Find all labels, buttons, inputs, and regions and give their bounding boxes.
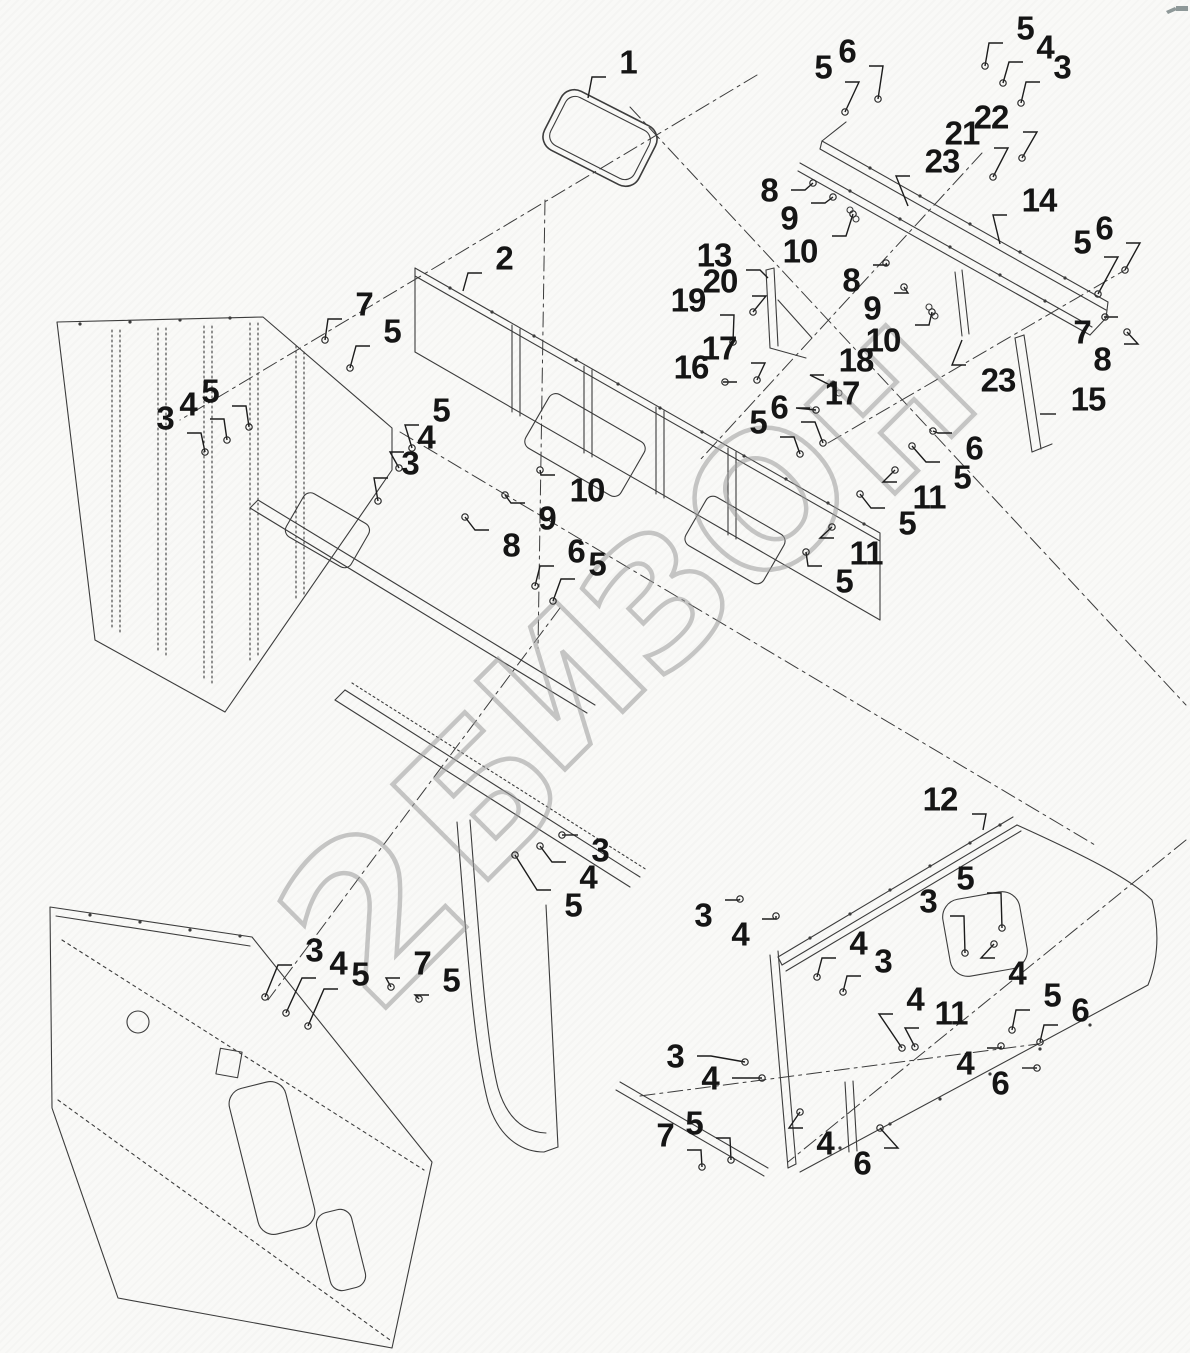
callout-label-3: 3 [401,447,418,480]
callout-label-2: 2 [495,242,512,275]
callout-leader [465,517,489,530]
callout-label-6: 6 [991,1067,1008,1100]
callout-label-5: 5 [351,958,368,991]
callout-label-3: 3 [694,899,711,932]
callout-label-4: 4 [417,421,434,454]
callout-leader [1022,132,1037,158]
callout-label-8: 8 [1093,343,1110,376]
callout-leader-lines [0,0,1190,1353]
callout-label-23: 23 [981,364,1016,397]
callout-label-4: 4 [1008,957,1025,990]
callout-leader [588,77,606,98]
callout-leader [1098,257,1118,294]
callout-leader [950,916,965,953]
callout-label-4: 4 [701,1062,718,1095]
callout-label-19: 19 [671,284,706,317]
callout-label-5: 5 [1073,226,1090,259]
callout-leader [1021,82,1040,103]
callout-leader [832,214,853,236]
callout-leader [981,944,995,958]
callout-leader [896,176,910,206]
callout-label-15: 15 [1071,383,1106,416]
callout-leader [801,422,823,443]
callout-leader [873,263,887,265]
callout-label-3: 3 [156,402,173,435]
callout-label-3: 3 [305,934,322,967]
callout-label-3: 3 [1053,51,1070,84]
callout-label-4: 4 [849,927,866,960]
callout-leader [820,527,834,538]
callout-label-3: 3 [666,1040,683,1073]
callout-leader [187,433,205,452]
callout-label-4: 4 [579,861,596,894]
callout-leader [232,406,249,427]
callout-label-9: 9 [780,202,797,235]
callout-label-17: 17 [825,377,860,410]
callout-leader [879,1014,902,1048]
callout-label-9: 9 [538,502,555,535]
callout-leader [374,478,388,501]
callout-leader [817,958,836,977]
callout-leader [725,899,740,900]
callout-leader [883,470,897,482]
callout-label-6: 6 [853,1147,870,1180]
callout-label-7: 7 [355,288,372,321]
callout-label-4: 4 [329,947,346,980]
callout-label-8: 8 [760,174,777,207]
callout-label-3: 3 [874,945,891,978]
callout-label-23: 23 [925,145,960,178]
callout-label-5: 5 [442,964,459,997]
callout-label-8: 8 [842,264,859,297]
callout-leader [1012,1010,1030,1030]
callout-leader [540,846,566,862]
callout-label-4: 4 [956,1047,973,1080]
callout-label-18: 18 [839,344,874,377]
callout-label-7: 7 [656,1119,673,1152]
callout-label-5: 5 [432,394,449,427]
callout-label-20: 20 [703,265,738,298]
callout-label-5: 5 [383,315,400,348]
callout-leader [553,579,575,601]
callout-label-5: 5 [685,1107,702,1140]
callout-label-6: 6 [1095,212,1112,245]
callout-label-10: 10 [570,474,605,507]
callout-leader [463,273,482,291]
callout-label-6: 6 [567,535,584,568]
callout-label-14: 14 [1022,184,1057,217]
callout-label-5: 5 [1016,12,1033,45]
callout-label-5: 5 [956,862,973,895]
callout-label-4: 4 [816,1127,833,1160]
callout-label-5: 5 [588,548,605,581]
callout-leader [845,82,859,112]
callout-leader [987,893,1002,928]
callout-label-5: 5 [201,375,218,408]
callout-leader [746,270,768,278]
callout-label-5: 5 [564,889,581,922]
callout-label-17: 17 [702,332,737,365]
callout-leader [993,215,1007,244]
callout-label-4: 4 [179,388,196,421]
callout-leader [1125,243,1140,270]
callout-label-5: 5 [814,51,831,84]
callout-leader [912,446,940,462]
callout-label-11: 11 [850,537,883,570]
callout-leader [308,989,338,1026]
callout-label-10: 10 [783,235,818,268]
callout-label-5: 5 [749,406,766,439]
callout-leader [515,855,551,890]
callout-leader [716,1138,731,1160]
callout-label-9: 9 [863,292,880,325]
callout-label-4: 4 [731,918,748,951]
callout-label-5: 5 [953,461,970,494]
callout-leader [286,978,316,1013]
callout-leader [880,1128,898,1148]
callout-leader [325,319,342,340]
callout-leader [350,346,370,368]
callout-label-5: 5 [1043,979,1060,1012]
parts-diagram-page: 2БИЗОН 156543222123891014132019289106578… [0,0,1190,1353]
callout-label-6: 6 [770,391,787,424]
callout-label-11: 11 [913,481,946,514]
callout-leader [265,965,292,997]
callout-label-5: 5 [835,565,852,598]
callout-leader [535,566,554,586]
callout-leader [1003,62,1023,83]
callout-leader [985,43,1003,66]
callout-label-3: 3 [919,885,936,918]
callout-label-8: 8 [502,529,519,562]
callout-leader [780,437,800,454]
callout-leader [789,1112,803,1128]
callout-label-7: 7 [413,947,430,980]
callout-leader [993,148,1008,177]
callout-leader [860,494,885,508]
callout-label-12: 12 [923,783,958,816]
callout-label-1: 1 [619,46,636,79]
callout-leader [210,419,227,440]
callout-label-6: 6 [1071,994,1088,1027]
callout-leader [869,66,883,99]
callout-label-7: 7 [1073,316,1090,349]
callout-leader [952,340,966,365]
callout-label-4: 4 [1036,31,1053,64]
callout-label-6: 6 [838,35,855,68]
callout-leader [1124,332,1138,344]
callout-leader [972,814,986,830]
callout-label-4: 4 [906,983,923,1016]
callout-label-11: 11 [935,997,968,1030]
callout-label-5: 5 [898,507,915,540]
